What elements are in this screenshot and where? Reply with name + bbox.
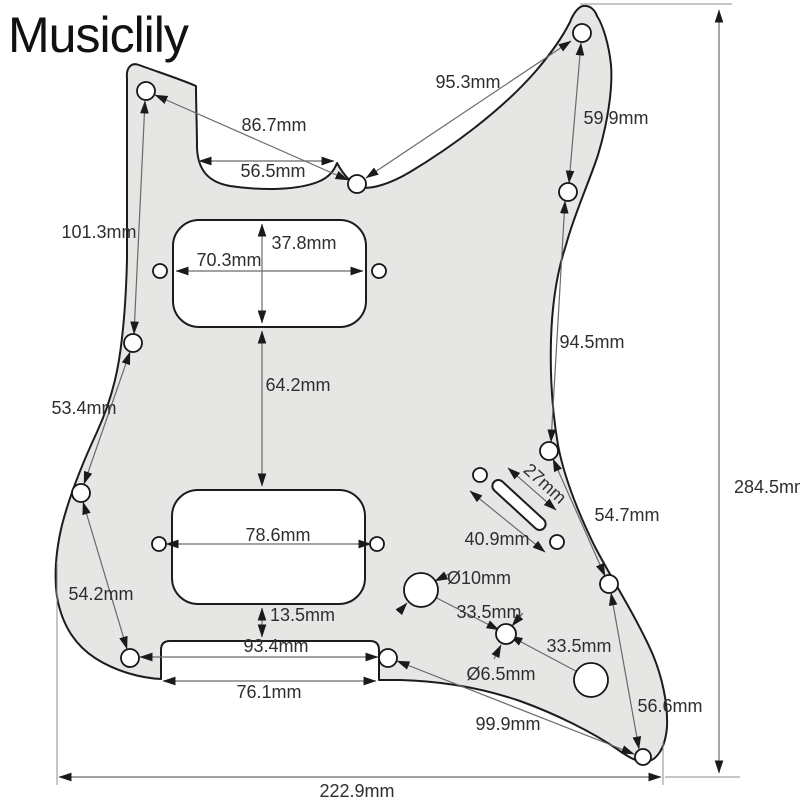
tone-pot-hole	[574, 663, 608, 697]
dim-label-left-mid-span: 53.4mm	[51, 398, 116, 418]
diagram-canvas: Musiclily	[0, 0, 800, 800]
dim-label-switch-screw-span: 40.9mm	[464, 529, 529, 549]
brand-logo: Musiclily	[8, 7, 189, 63]
neck-pickup-mount-hole-left	[153, 264, 167, 278]
dim-label-mini-hole-diameter: Ø6.5mm	[466, 664, 535, 684]
dim-label-overall-width: 222.9mm	[319, 781, 394, 800]
screw-hole-top-left-horn	[137, 82, 155, 100]
dim-label-overall-height: 284.5mm	[734, 477, 800, 497]
mini-hole	[496, 624, 516, 644]
dim-label-volume-to-mini: 33.5mm	[456, 602, 521, 622]
dim-label-bridge-pickup-width: 78.6mm	[245, 525, 310, 545]
screw-hole-top-right-horn	[573, 24, 591, 42]
dim-label-right-edge-span: 94.5mm	[559, 332, 624, 352]
screw-hole-neck-tab	[348, 175, 366, 193]
dim-label-left-lower-span: 54.2mm	[68, 584, 133, 604]
dim-label-bridge-to-notch: 13.5mm	[270, 605, 335, 625]
neck-pickup-mount-hole-right	[372, 264, 386, 278]
dim-label-pickup-gap: 64.2mm	[265, 375, 330, 395]
dim-label-bottom-diag: 99.9mm	[475, 714, 540, 734]
bridge-pickup-mount-hole-right	[370, 537, 384, 551]
dim-label-upper-left-diag: 86.7mm	[241, 115, 306, 135]
screw-hole-right-mid	[540, 442, 558, 460]
dim-label-neck-pocket-width: 56.5mm	[240, 161, 305, 181]
dim-label-bottom-notch-width: 76.1mm	[236, 682, 301, 702]
screw-hole-bottom-right	[379, 649, 397, 667]
switch-screw-hole-upper	[473, 468, 487, 482]
dim-label-horn-diag: 95.3mm	[435, 72, 500, 92]
neck-pickup-cutout	[173, 220, 366, 327]
screw-hole-bottom-left	[121, 649, 139, 667]
screw-hole-right-upper	[559, 183, 577, 201]
dim-label-left-upper-span: 101.3mm	[61, 222, 136, 242]
screw-hole-right-lower	[600, 575, 618, 593]
bridge-pickup-cutout	[172, 490, 365, 604]
dim-label-pot-hole-diameter: Ø10mm	[447, 568, 511, 588]
dim-label-bottom-right-span: 56.6mm	[637, 696, 702, 716]
screw-hole-left-lower	[72, 484, 90, 502]
screw-hole-bottom-tip	[635, 749, 651, 765]
dim-label-horn-screw-span: 59.9mm	[583, 108, 648, 128]
dim-label-neck-pickup-width: 70.3mm	[196, 250, 261, 270]
dim-label-mini-to-tone: 33.5mm	[546, 636, 611, 656]
bridge-pickup-mount-hole-left	[152, 537, 166, 551]
dim-label-bottom-screw-span: 93.4mm	[243, 636, 308, 656]
dim-label-neck-pickup-height: 37.8mm	[271, 233, 336, 253]
volume-pot-hole	[404, 573, 438, 607]
pickguard-dimension-diagram: Musiclily	[0, 0, 800, 800]
screw-hole-left-waist	[124, 334, 142, 352]
switch-screw-hole-lower	[550, 535, 564, 549]
dim-label-lower-right-span: 54.7mm	[594, 505, 659, 525]
